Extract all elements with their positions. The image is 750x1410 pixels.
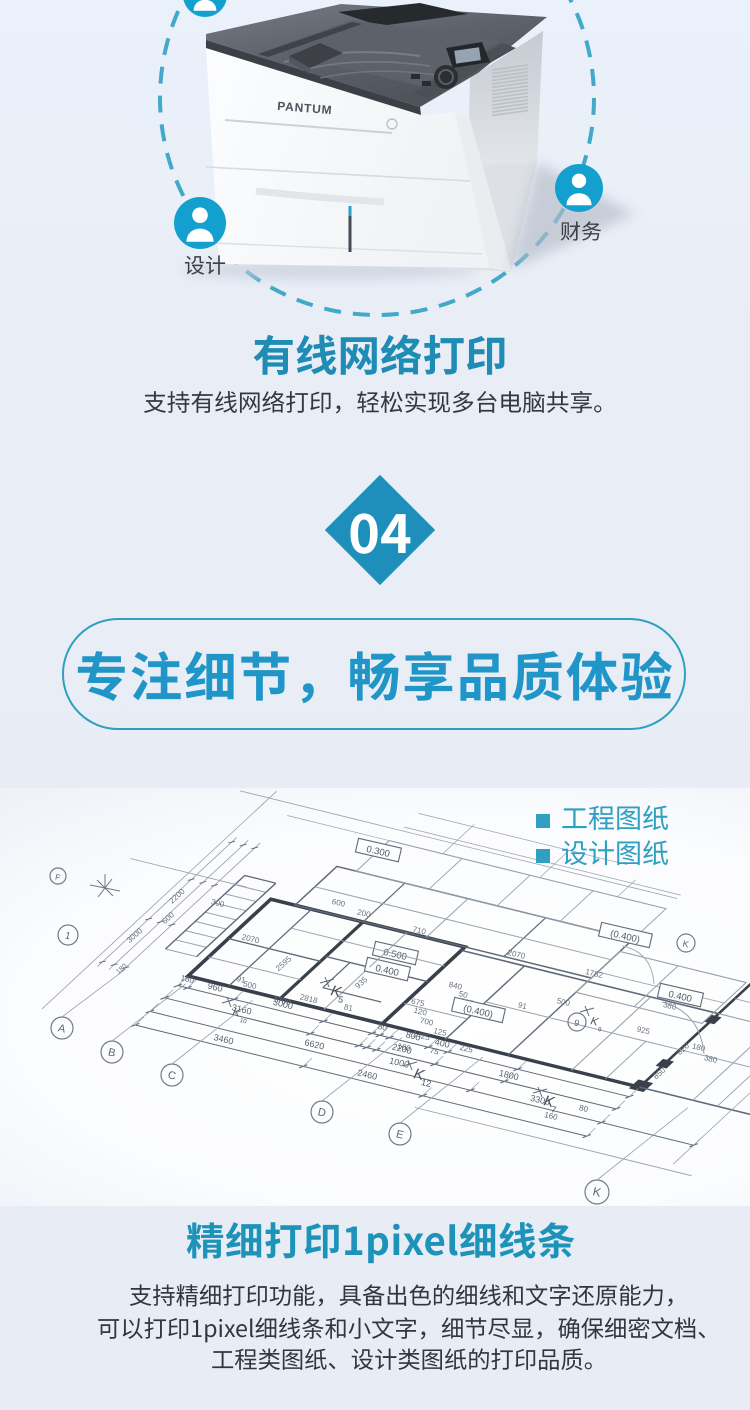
- svg-text:500: 500: [556, 996, 572, 1008]
- svg-text:80: 80: [578, 1103, 589, 1114]
- svg-text:2070: 2070: [241, 932, 261, 945]
- svg-text:960: 960: [207, 981, 224, 994]
- svg-text:925: 925: [636, 1025, 652, 1037]
- svg-text:5: 5: [337, 994, 344, 1005]
- svg-text:935: 935: [353, 975, 369, 991]
- svg-text:80: 80: [377, 1022, 388, 1033]
- svg-text:2070: 2070: [507, 948, 527, 961]
- svg-text:180: 180: [115, 963, 128, 976]
- svg-text:81: 81: [343, 1002, 354, 1013]
- svg-text:B: B: [107, 1046, 117, 1059]
- svg-text:180: 180: [691, 1042, 707, 1054]
- svg-text:380: 380: [703, 1053, 719, 1065]
- svg-text:F: F: [54, 873, 61, 883]
- svg-text:300: 300: [210, 897, 226, 909]
- svg-text:180: 180: [180, 973, 196, 985]
- svg-text:200: 200: [356, 908, 372, 920]
- svg-text:1: 1: [64, 930, 72, 942]
- svg-text:3460: 3460: [213, 1032, 235, 1046]
- svg-text:820: 820: [675, 1041, 691, 1057]
- svg-text:K: K: [592, 1184, 603, 1199]
- svg-text:225: 225: [459, 1043, 475, 1055]
- svg-text:C: C: [167, 1069, 177, 1082]
- svg-text:380: 380: [662, 1000, 678, 1012]
- svg-text:E: E: [395, 1128, 405, 1141]
- svg-text:D: D: [317, 1106, 327, 1119]
- svg-text:600: 600: [331, 897, 347, 909]
- svg-text:12: 12: [420, 1077, 432, 1089]
- svg-text:75: 75: [429, 1046, 440, 1057]
- svg-text:600: 600: [160, 910, 176, 926]
- svg-text:2595: 2595: [274, 954, 294, 973]
- svg-text:9: 9: [573, 1018, 580, 1029]
- svg-text:700: 700: [419, 1016, 435, 1028]
- svg-text:A: A: [57, 1022, 67, 1035]
- svg-text:K: K: [682, 938, 690, 949]
- svg-text:10: 10: [239, 1018, 247, 1025]
